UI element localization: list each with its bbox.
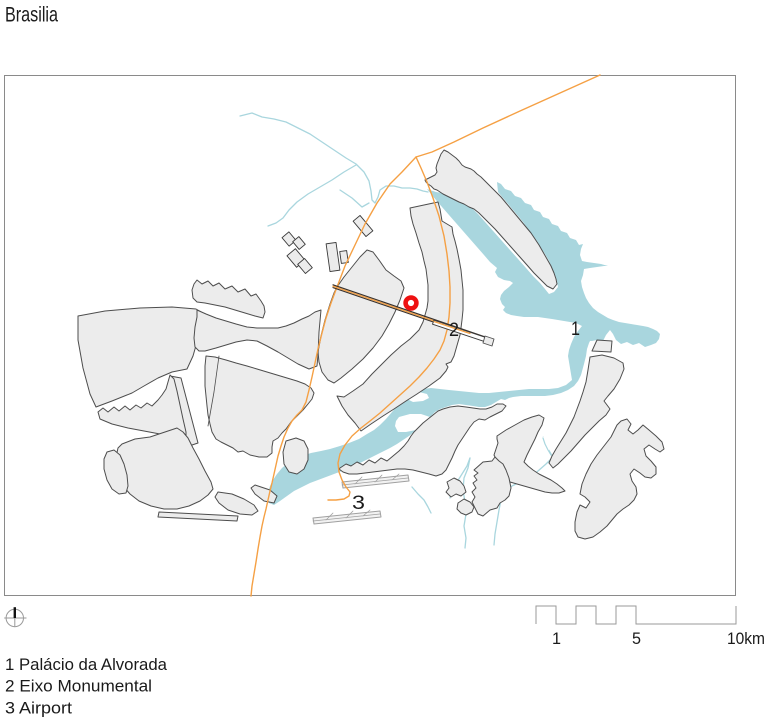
svg-text:1 Palácio da Alvorada: 1 Palácio da Alvorada — [5, 656, 167, 674]
svg-text:5: 5 — [632, 630, 641, 648]
svg-text:3: 3 — [352, 493, 365, 514]
svg-text:1: 1 — [571, 319, 580, 340]
svg-text:1: 1 — [552, 630, 561, 648]
svg-text:2: 2 — [449, 320, 459, 341]
svg-text:10km: 10km — [727, 630, 765, 648]
svg-text:2 Eixo Monumental: 2 Eixo Monumental — [5, 678, 152, 696]
svg-text:3 Airport: 3 Airport — [5, 700, 73, 718]
svg-text:Brasilia: Brasilia — [5, 3, 58, 27]
